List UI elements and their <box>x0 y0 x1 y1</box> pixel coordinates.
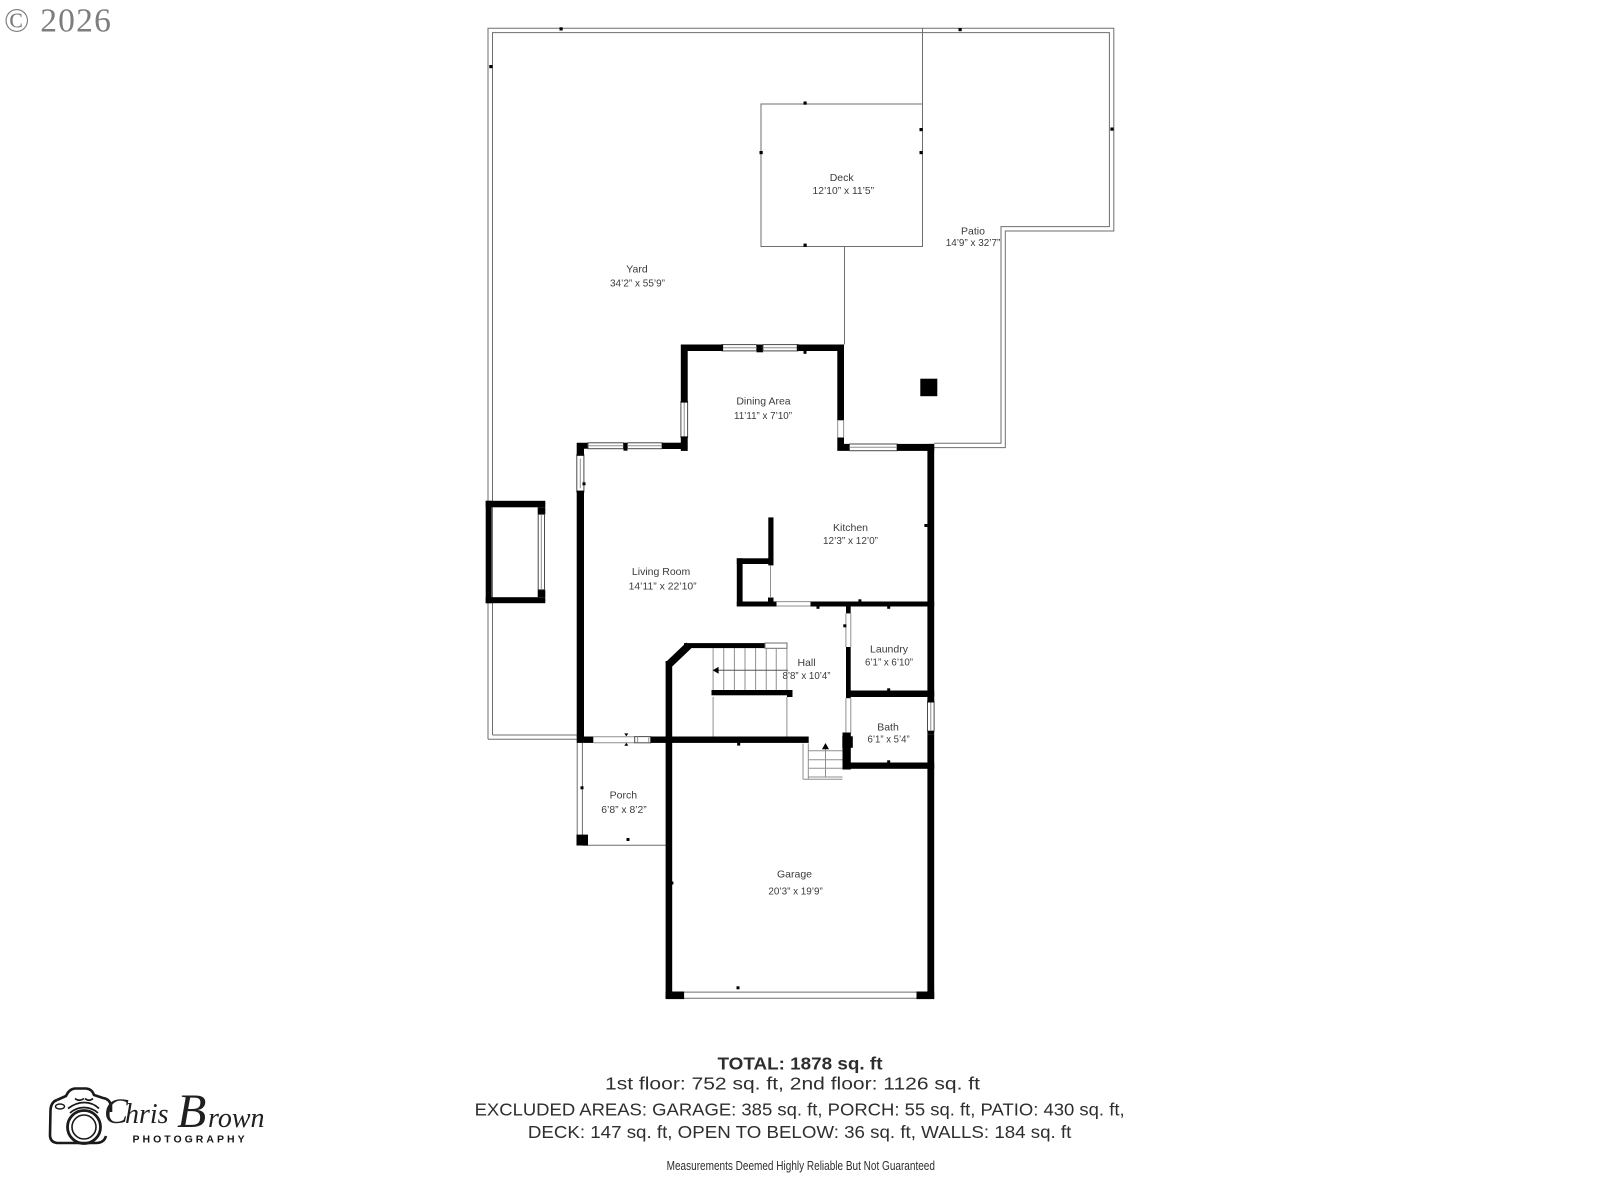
svg-text:1st floor: 752 sq. ft, 2nd flo: 1st floor: 752 sq. ft, 2nd floor: 1126 s… <box>605 1073 980 1093</box>
svg-text:Laundry: Laundry <box>870 643 909 655</box>
svg-text:Living Room: Living Room <box>632 566 691 578</box>
svg-text:B: B <box>177 1085 206 1138</box>
svg-text:DECK: 147 sq. ft, OPEN TO BELO: DECK: 147 sq. ft, OPEN TO BELOW: 36 sq. … <box>528 1122 1072 1142</box>
svg-text:Deck: Deck <box>830 172 855 184</box>
svg-text:Garage: Garage <box>777 869 812 881</box>
svg-text:Hall: Hall <box>797 657 815 669</box>
svg-text:12’3” x 12’0”: 12’3” x 12’0” <box>823 535 878 547</box>
svg-text:14’11” x 22’10”: 14’11” x 22’10” <box>629 580 697 592</box>
svg-text:14’9” x 32’7”: 14’9” x 32’7” <box>946 237 1001 249</box>
svg-text:12’10” x 11’5”: 12’10” x 11’5” <box>813 185 875 197</box>
svg-text:TOTAL: 1878 sq. ft: TOTAL: 1878 sq. ft <box>718 1054 883 1074</box>
svg-text:Yard: Yard <box>626 264 648 276</box>
svg-text:Patio: Patio <box>961 225 985 237</box>
svg-text:© 2026: © 2026 <box>4 3 112 40</box>
svg-text:PHOTOGRAPHY: PHOTOGRAPHY <box>133 1134 248 1146</box>
svg-text:20’3” x 19’9”: 20’3” x 19’9” <box>768 885 823 897</box>
svg-text:6’1” x 6’10”: 6’1” x 6’10” <box>865 657 913 669</box>
svg-text:Dining Area: Dining Area <box>736 395 790 407</box>
svg-text:hris: hris <box>125 1099 169 1130</box>
svg-text:Kitchen: Kitchen <box>833 522 868 534</box>
svg-text:rown: rown <box>208 1103 265 1134</box>
svg-text:EXCLUDED AREAS: GARAGE: 385 sq: EXCLUDED AREAS: GARAGE: 385 sq. ft, PORC… <box>475 1100 1125 1120</box>
svg-text:11’11” x 7’10”: 11’11” x 7’10” <box>734 410 792 422</box>
svg-text:Measurements Deemed Highly Rel: Measurements Deemed Highly Reliable But … <box>667 1159 935 1173</box>
svg-text:Porch: Porch <box>610 790 638 802</box>
svg-text:6’8” x 8’2”: 6’8” x 8’2” <box>601 804 647 816</box>
svg-text:34’2” x 55’9”: 34’2” x 55’9” <box>610 277 665 289</box>
svg-text:6’1” x 5’4”: 6’1” x 5’4” <box>868 734 911 746</box>
svg-text:Bath: Bath <box>877 722 899 734</box>
svg-text:8’8” x 10’4”: 8’8” x 10’4” <box>782 670 831 682</box>
